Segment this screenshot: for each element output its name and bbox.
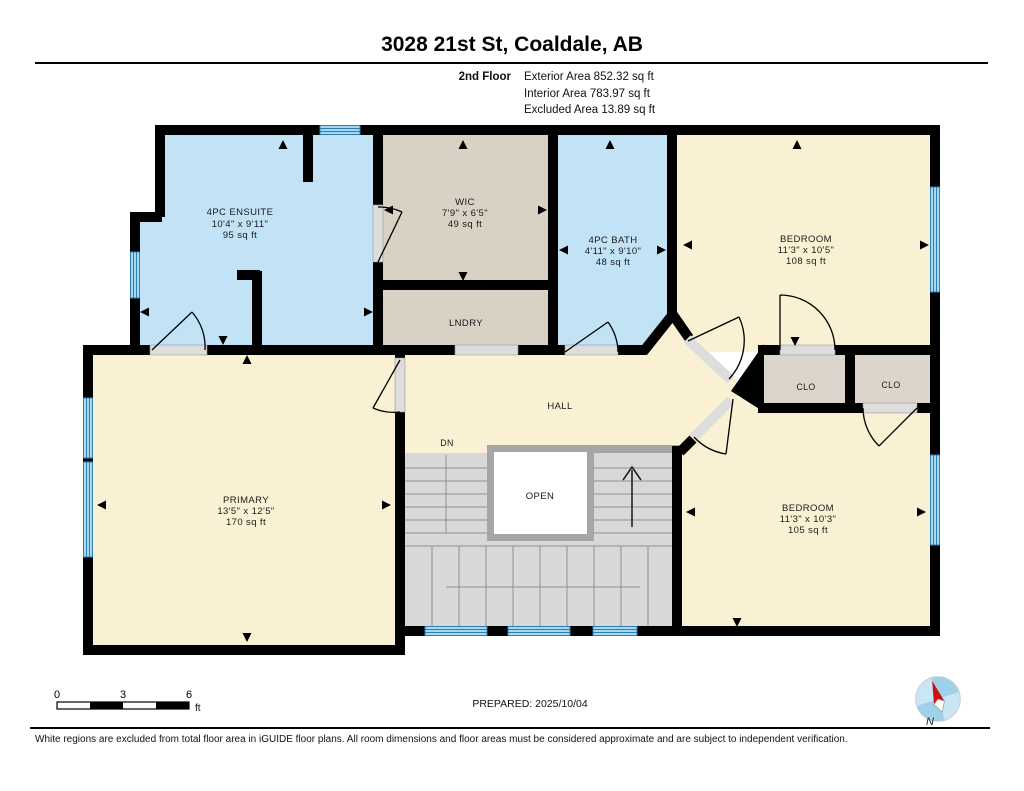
window	[320, 126, 360, 135]
closet-1-floor	[764, 354, 850, 408]
disclaimer-text: White regions are excluded from total fl…	[35, 734, 995, 745]
compass-rose-icon	[910, 671, 965, 726]
floor-plan-drawing: 4PC ENSUITE 10'4" x 9'11" 95 sq ft WIC 7…	[0, 0, 1024, 791]
room-name: BEDROOM	[782, 503, 834, 514]
window	[84, 462, 93, 557]
room-name: PRIMARY	[223, 495, 269, 506]
room-name: BEDROOM	[780, 234, 832, 245]
scale-unit: ft	[195, 703, 201, 714]
window	[508, 627, 570, 636]
threshold	[863, 403, 917, 413]
room-name: WIC	[455, 197, 475, 208]
room-dims: 11'3" x 10'3"	[780, 514, 837, 525]
compass-north-label: N	[926, 716, 934, 728]
room-dims: 13'5" x 12'5"	[217, 506, 274, 517]
room-dims: 4'11" x 9'10"	[585, 246, 642, 257]
window	[931, 187, 940, 292]
scale-bar: 0 3 6 ft	[54, 689, 201, 714]
room-area: 48 sq ft	[596, 257, 630, 268]
stairs-down-label: DN	[440, 438, 454, 448]
stairwell-open-label: OPEN	[526, 491, 555, 502]
scale-tick-6: 6	[186, 689, 192, 701]
window	[131, 252, 140, 298]
threshold	[150, 345, 207, 355]
room-area: 170 sq ft	[226, 517, 266, 528]
prepared-date: PREPARED: 2025/10/04	[472, 698, 588, 710]
window	[425, 627, 487, 636]
room-area: 108 sq ft	[786, 256, 826, 267]
window	[931, 455, 940, 545]
staircase	[405, 445, 682, 628]
room-dims: 11'3" x 10'5"	[778, 245, 835, 256]
scale-tick-0: 0	[54, 689, 60, 701]
room-area: 105 sq ft	[788, 525, 828, 536]
room-label-hall: HALL	[547, 401, 572, 412]
room-dims: 10'4" x 9'11"	[212, 219, 269, 230]
floor-plan-page: 3028 21st St, Coaldale, AB 2nd Floor Ext…	[0, 0, 1024, 791]
room-label-closet-1: CLO	[796, 382, 815, 392]
room-label-bedroom-1: BEDROOM 11'3" x 10'5" 108 sq ft	[778, 234, 835, 267]
threshold	[455, 345, 518, 355]
footer-divider	[30, 727, 990, 729]
room-label-bedroom-2: BEDROOM 11'3" x 10'3" 105 sq ft	[780, 503, 837, 536]
threshold	[780, 345, 835, 355]
room-name: 4PC BATH	[589, 235, 638, 246]
scale-tick-3: 3	[120, 689, 126, 701]
room-label-closet-2: CLO	[881, 380, 900, 390]
window	[84, 398, 93, 458]
window	[593, 627, 637, 636]
room-name: 4PC ENSUITE	[207, 207, 274, 218]
room-label-laundry: LNDRY	[449, 318, 483, 329]
room-area: 49 sq ft	[448, 219, 482, 230]
room-area: 95 sq ft	[223, 230, 257, 241]
room-dims: 7'9" x 6'5"	[442, 208, 488, 219]
